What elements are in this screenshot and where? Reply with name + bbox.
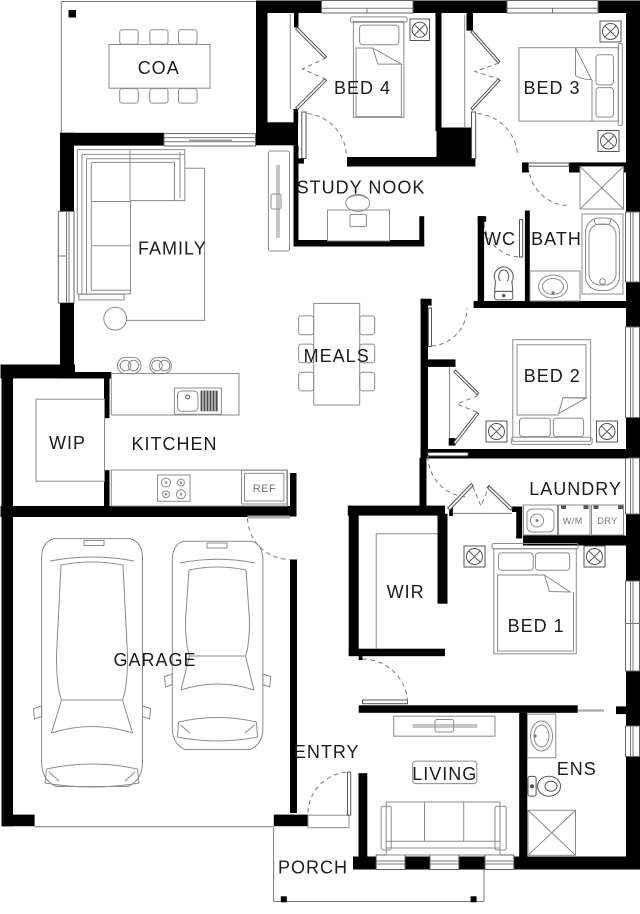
svg-text:ENTRY: ENTRY — [294, 742, 360, 762]
svg-text:ENS: ENS — [557, 759, 597, 779]
svg-text:REF: REF — [253, 483, 277, 495]
svg-text:KITCHEN: KITCHEN — [131, 434, 217, 454]
svg-text:BED 3: BED 3 — [523, 78, 580, 98]
svg-text:LIVING: LIVING — [412, 764, 477, 784]
svg-text:WC: WC — [484, 229, 516, 249]
svg-text:PORCH: PORCH — [278, 858, 348, 878]
svg-text:COA: COA — [138, 58, 180, 78]
svg-text:BED 1: BED 1 — [508, 616, 565, 636]
svg-text:WIP: WIP — [49, 433, 86, 453]
svg-text:BED 2: BED 2 — [524, 366, 581, 386]
svg-text:LAUNDRY: LAUNDRY — [529, 479, 622, 499]
svg-text:BATH: BATH — [531, 229, 582, 249]
svg-text:STUDY NOOK: STUDY NOOK — [297, 178, 426, 198]
svg-text:WIR: WIR — [387, 582, 425, 602]
svg-text:FAMILY: FAMILY — [138, 239, 207, 259]
svg-text:GARAGE: GARAGE — [113, 650, 196, 670]
svg-text:DRY: DRY — [597, 516, 617, 526]
svg-text:MEALS: MEALS — [304, 346, 370, 366]
svg-text:BED 4: BED 4 — [334, 78, 391, 98]
svg-text:W/M: W/M — [563, 516, 583, 526]
